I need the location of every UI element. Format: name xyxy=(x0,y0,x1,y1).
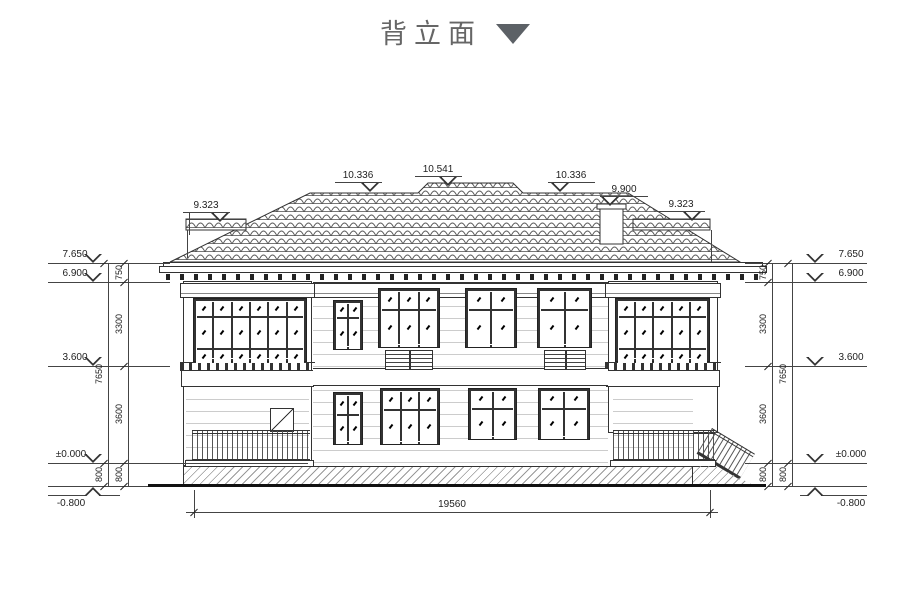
window-pane xyxy=(420,311,437,347)
window-pane xyxy=(269,350,285,363)
window-pane xyxy=(566,311,590,347)
window-pane xyxy=(673,350,689,363)
window-pane xyxy=(654,318,670,348)
dim-right-800i: 800 xyxy=(758,454,770,494)
mark-chimney-line xyxy=(600,196,648,197)
porch-door-panel xyxy=(270,408,294,432)
mark-left-wing-line xyxy=(183,212,230,213)
window-pane xyxy=(383,411,400,444)
dim-left-3300: 3300 xyxy=(114,304,126,344)
window-pane xyxy=(494,391,515,408)
window-pane xyxy=(196,350,212,363)
dim-left-7650: 7650 xyxy=(94,354,106,394)
title-triangle-icon xyxy=(496,24,530,44)
dim-overall-label: 19560 xyxy=(423,499,481,510)
mark-left-wing-leader xyxy=(189,213,190,235)
drawing-title: 背立面 xyxy=(0,12,910,51)
window-3col-upper xyxy=(378,288,440,348)
window-pane xyxy=(214,318,230,348)
mark-left-main-line xyxy=(335,182,382,183)
drawing-sheet: 背立面 xyxy=(0,0,910,616)
window-pane xyxy=(492,311,514,347)
level-line-left-6900 xyxy=(48,282,170,283)
dim-right-7650: 7650 xyxy=(778,354,790,394)
window-narrow-upper xyxy=(333,300,363,350)
window-pane xyxy=(383,391,400,409)
window-pane xyxy=(654,350,670,363)
window-pane xyxy=(336,319,347,349)
mark-left-wing-label: 9.323 xyxy=(182,200,230,211)
chimney xyxy=(600,208,623,244)
right-bay-frieze xyxy=(605,283,721,298)
window-band-right xyxy=(615,298,710,362)
roof xyxy=(160,180,766,265)
window-pane xyxy=(471,391,492,408)
window-pane xyxy=(196,301,212,316)
window-band-left xyxy=(193,298,307,362)
window-pane xyxy=(566,291,590,309)
window-pane xyxy=(336,303,347,317)
elevation-left-m800: -0.800 xyxy=(42,498,100,509)
window-pane xyxy=(618,301,634,316)
mark-center-label: 10.541 xyxy=(414,164,462,175)
window-2col-ground-a xyxy=(468,388,517,440)
dim-left-3600: 3600 xyxy=(114,394,126,434)
dim-chain-left-outer xyxy=(108,263,109,486)
window-pane xyxy=(565,410,587,439)
window-pane xyxy=(691,318,707,348)
window-pane xyxy=(400,291,417,309)
left-bay-floor-band xyxy=(181,370,314,387)
window-pane xyxy=(540,291,564,309)
left-wing-wall-edge xyxy=(187,230,188,258)
window-pane xyxy=(471,410,492,439)
right-wing-wall-edge xyxy=(711,230,712,262)
window-pane xyxy=(420,391,437,409)
window-pane xyxy=(494,410,515,439)
dim-chain-left-inner xyxy=(128,263,129,486)
dim-ext-right xyxy=(710,490,711,518)
window-pane xyxy=(288,301,304,316)
plinth xyxy=(183,466,693,486)
window-pane xyxy=(349,303,360,317)
mark-right-wing-label: 9.323 xyxy=(657,199,705,210)
level-line-left-7650 xyxy=(48,263,170,264)
window-pane xyxy=(349,319,360,349)
window-3col-ground xyxy=(380,388,440,445)
dim-left-800i: 800 xyxy=(114,454,126,494)
window-2col-upper-b xyxy=(537,288,592,348)
window-pane xyxy=(349,395,360,414)
window-pane xyxy=(636,350,652,363)
window-pane xyxy=(233,301,249,316)
mark-center-line xyxy=(415,176,462,177)
window-pane xyxy=(691,301,707,316)
dim-right-750: 750 xyxy=(758,252,770,292)
window-pane xyxy=(251,318,267,348)
window-pane xyxy=(636,301,652,316)
dim-left-800o: 800 xyxy=(94,454,106,494)
window-pane xyxy=(288,350,304,363)
dim-right-3300: 3300 xyxy=(758,304,770,344)
level-line-left-3600 xyxy=(48,366,170,367)
drawing-title-text: 背立面 xyxy=(380,12,482,51)
window-pane xyxy=(251,350,267,363)
window-pane xyxy=(381,311,398,347)
window-pane xyxy=(673,301,689,316)
window-pane xyxy=(214,301,230,316)
window-pane xyxy=(400,311,417,347)
mark-right-main-label: 10.336 xyxy=(547,170,595,181)
dim-right-800o: 800 xyxy=(778,454,790,494)
underline-left-m800 xyxy=(48,495,120,496)
elevation-right-6900: 6.900 xyxy=(822,268,880,279)
window-2col-ground-b xyxy=(538,388,590,440)
window-pane xyxy=(654,301,670,316)
window-pane xyxy=(214,350,230,363)
mark-right-main-line xyxy=(548,182,595,183)
window-pane xyxy=(565,391,587,408)
elevation-right-7650: 7.650 xyxy=(822,249,880,260)
window-pane xyxy=(233,350,249,363)
mark-right-wing-line xyxy=(658,211,705,212)
window-pane xyxy=(269,301,285,316)
window-pane xyxy=(492,291,514,309)
window-pane xyxy=(618,318,634,348)
vent-louver-a xyxy=(385,350,433,370)
window-pane xyxy=(336,395,347,414)
window-2col-upper-a xyxy=(465,288,517,348)
right-bay-floor-band xyxy=(606,370,720,387)
window-pane xyxy=(540,311,564,347)
dim-ext-left xyxy=(194,490,195,518)
mark-left-main-label: 10.336 xyxy=(334,170,382,181)
window-pane xyxy=(381,291,398,309)
window-pane xyxy=(468,311,490,347)
window-pane xyxy=(636,318,652,348)
right-wing-ridge xyxy=(633,219,710,230)
window-pane xyxy=(468,291,490,309)
center-floor-band xyxy=(313,368,608,386)
left-porch-railing xyxy=(192,430,310,462)
chimney-cap xyxy=(597,204,626,209)
window-pane xyxy=(420,411,437,444)
window-pane xyxy=(233,318,249,348)
left-bay-frieze xyxy=(180,283,315,298)
window-pane xyxy=(251,301,267,316)
window-pane xyxy=(349,416,360,444)
window-pane xyxy=(288,318,304,348)
window-pane xyxy=(541,410,563,439)
window-pane xyxy=(420,291,437,309)
dim-right-3600: 3600 xyxy=(758,394,770,434)
window-narrow-ground xyxy=(333,392,363,445)
eave-dentil-band xyxy=(166,274,760,280)
window-pane xyxy=(196,318,212,348)
window-pane xyxy=(618,350,634,363)
window-pane xyxy=(541,391,563,408)
eave-fascia xyxy=(159,266,767,273)
window-pane xyxy=(269,318,285,348)
dim-left-750: 750 xyxy=(114,252,126,292)
left-wing-ridge xyxy=(186,219,246,230)
window-pane xyxy=(402,391,419,409)
elevation-right-0: ±0.000 xyxy=(822,449,880,460)
elevation-right-m800-triangle xyxy=(806,487,824,496)
dim-chain-right-inner xyxy=(772,263,773,486)
window-pane xyxy=(402,411,419,444)
elevation-right-m800: -0.800 xyxy=(822,498,880,509)
window-pane xyxy=(691,350,707,363)
elevation-right-3600: 3.600 xyxy=(822,352,880,363)
mark-chimney-label: 9.900 xyxy=(600,184,648,195)
vent-louver-b xyxy=(544,350,586,370)
dim-chain-right-outer xyxy=(792,263,793,486)
window-pane xyxy=(673,318,689,348)
dim-overall-line xyxy=(186,512,718,513)
ground-line xyxy=(148,484,766,487)
level-line-left-0 xyxy=(48,463,308,464)
level-line-right-3600 xyxy=(745,366,867,367)
window-pane xyxy=(336,416,347,444)
